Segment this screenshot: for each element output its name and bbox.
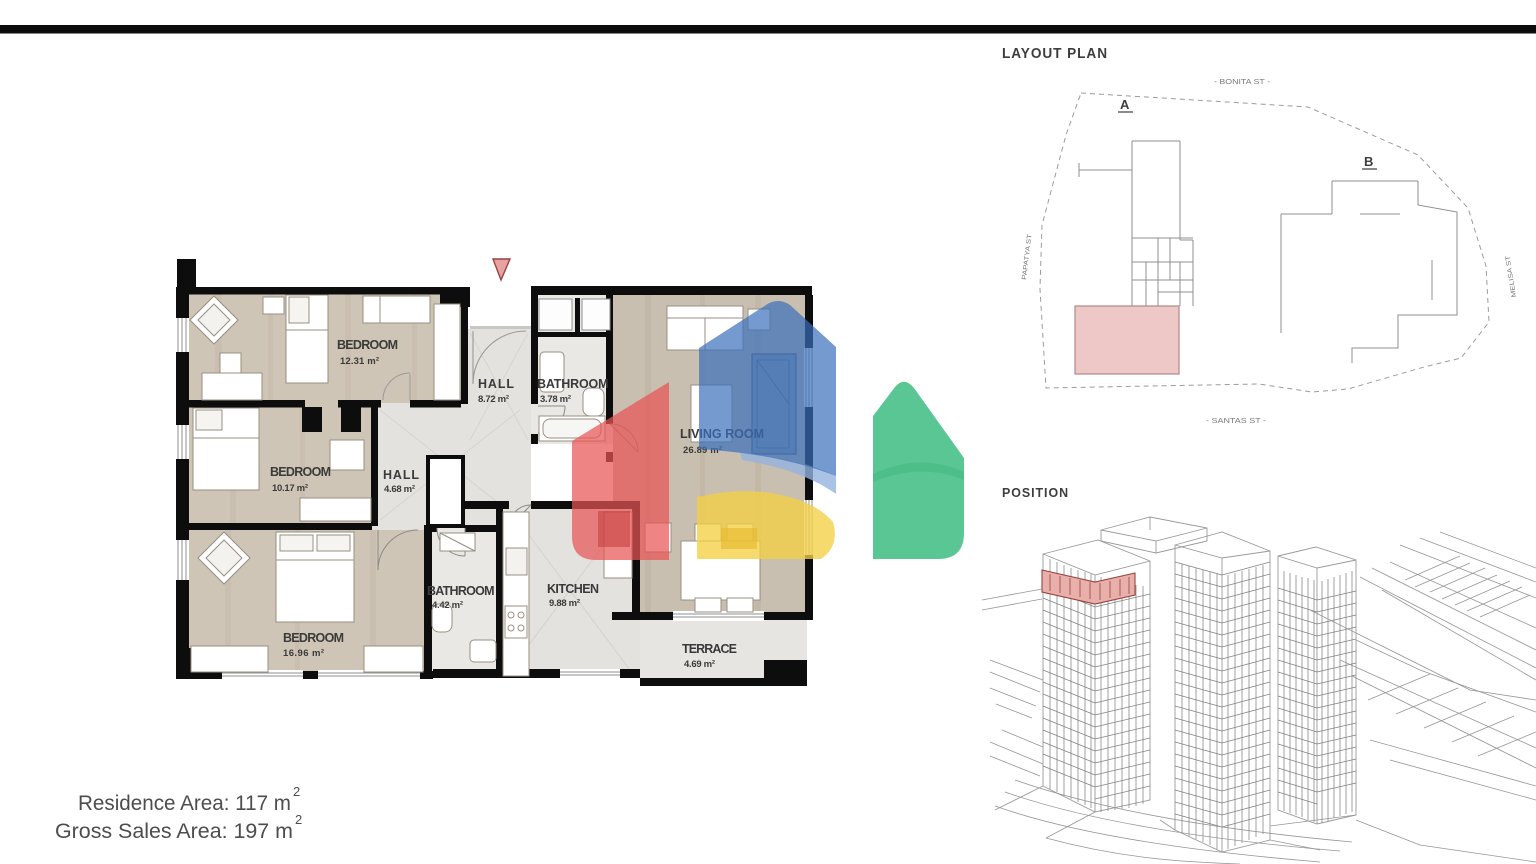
svg-text:HALL: HALL (383, 468, 420, 482)
svg-text:4.68 m²: 4.68 m² (384, 484, 415, 495)
svg-text:9.88 m²: 9.88 m² (549, 598, 580, 609)
svg-text:BATHROOM: BATHROOM (537, 377, 609, 391)
svg-text:16.96 m²: 16.96 m² (283, 648, 324, 659)
svg-text:A: A (1120, 97, 1130, 112)
svg-text:HALL: HALL (478, 377, 515, 391)
svg-text:8.72 m²: 8.72 m² (478, 394, 509, 405)
svg-text:POSITION: POSITION (1002, 485, 1069, 500)
svg-text:BEDROOM: BEDROOM (270, 465, 332, 479)
svg-text:4.42 m²: 4.42 m² (432, 600, 463, 611)
svg-text:3.78 m²: 3.78 m² (540, 394, 571, 405)
svg-text:B: B (1364, 154, 1373, 169)
svg-text:Residence Area: 117 m: Residence Area: 117 m (78, 791, 291, 815)
svg-text:2: 2 (295, 812, 302, 827)
svg-text:Gross Sales Area: 197 m: Gross Sales Area: 197 m (55, 819, 293, 843)
svg-text:2: 2 (293, 784, 300, 799)
svg-text:BATHROOM: BATHROOM (427, 584, 495, 598)
svg-text:- BONITA ST -: - BONITA ST - (1214, 79, 1271, 86)
svg-text:4.69 m²: 4.69 m² (684, 659, 715, 670)
svg-text:KITCHEN: KITCHEN (547, 582, 600, 596)
svg-text:BEDROOM: BEDROOM (283, 631, 345, 645)
svg-text:12.31 m²: 12.31 m² (340, 356, 379, 367)
svg-text:LAYOUT PLAN: LAYOUT PLAN (1002, 46, 1108, 62)
svg-text:BEDROOM: BEDROOM (337, 338, 399, 352)
svg-text:10.17 m²: 10.17 m² (272, 483, 308, 494)
svg-text:- SANTAS ST -: - SANTAS ST - (1206, 418, 1267, 425)
svg-text:TERRACE: TERRACE (682, 642, 738, 656)
